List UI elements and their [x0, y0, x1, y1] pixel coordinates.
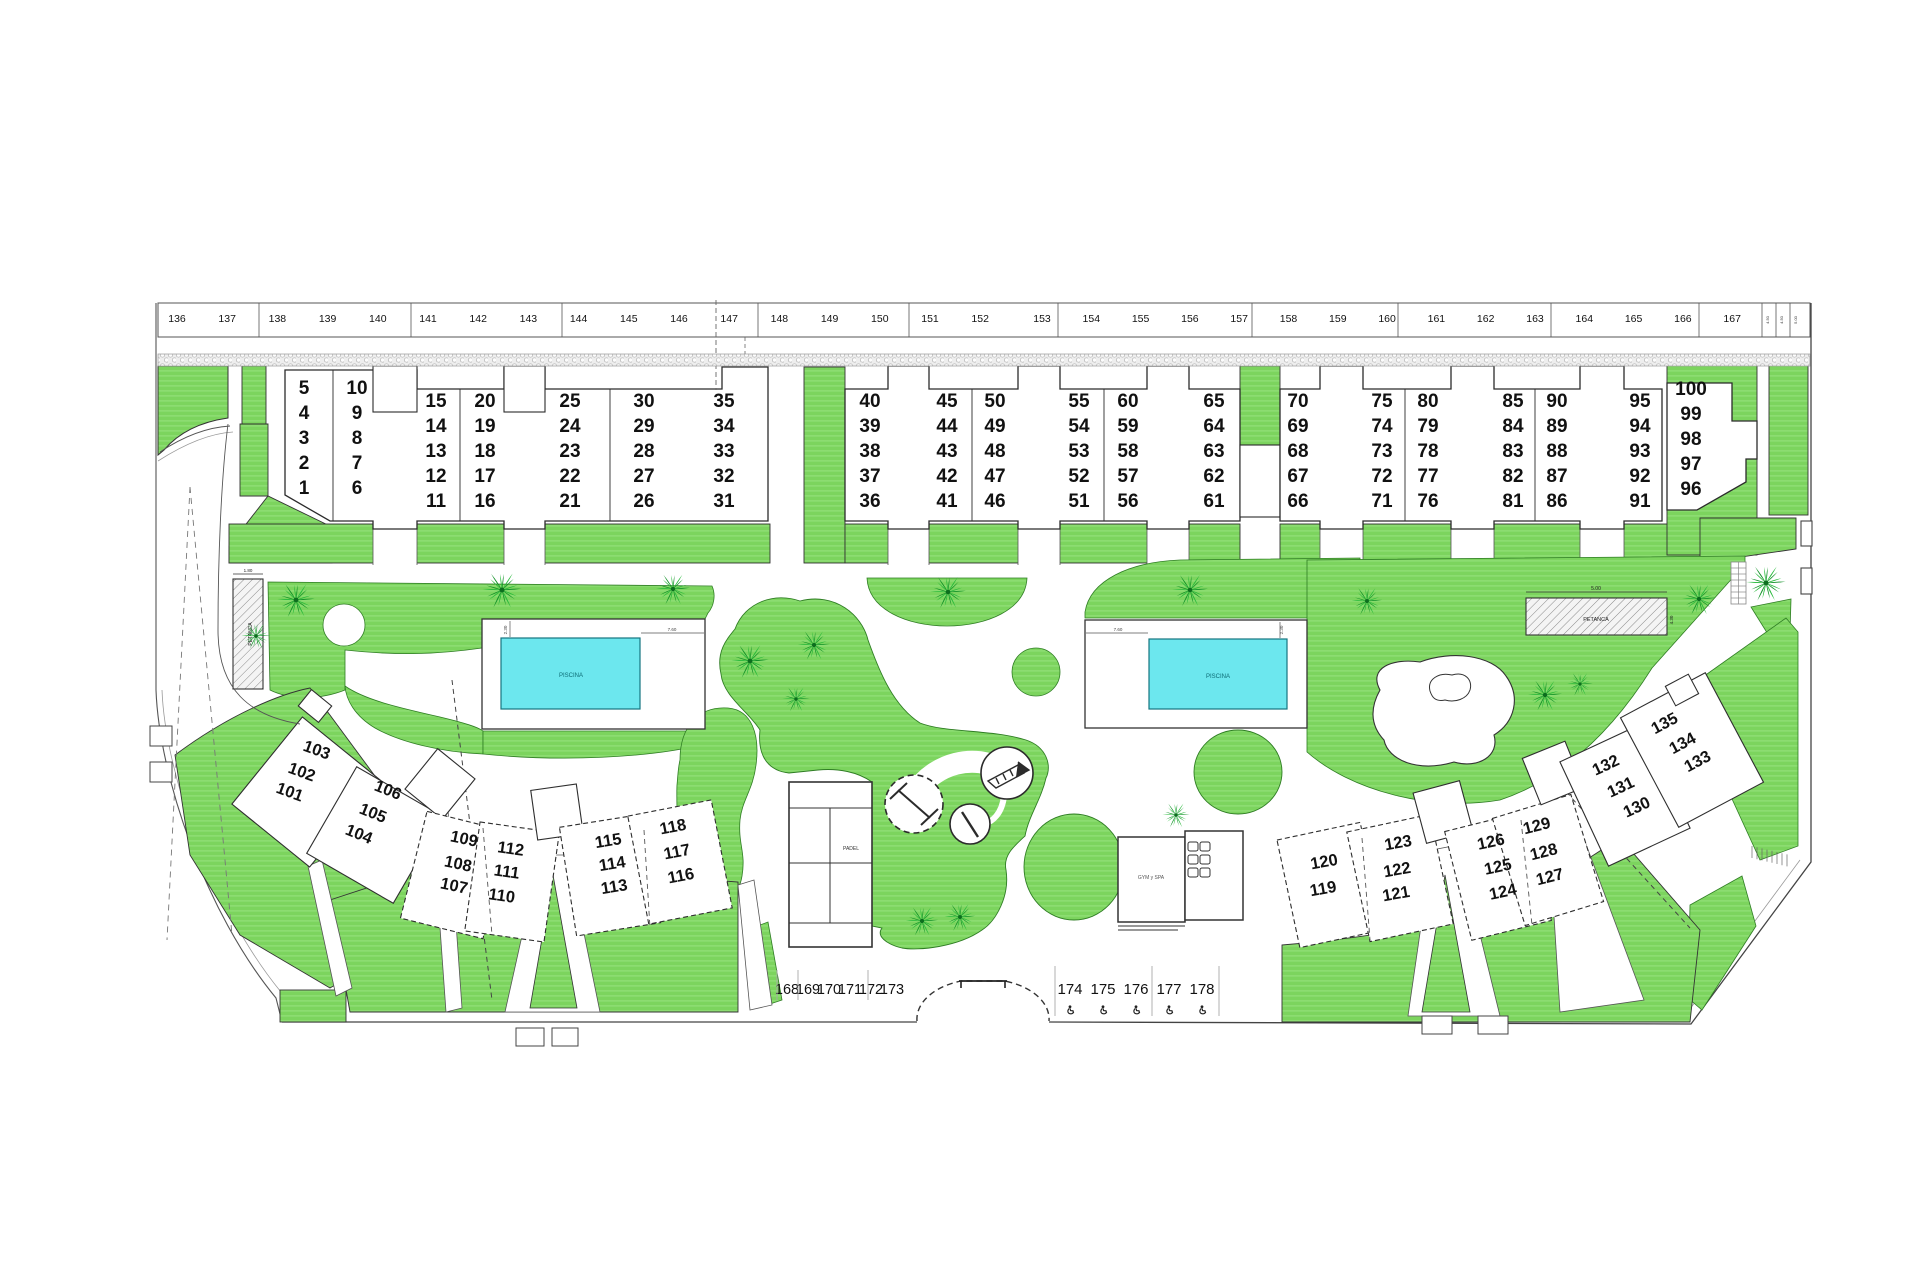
svg-text:65: 65: [1203, 391, 1225, 412]
svg-text:137: 137: [218, 313, 236, 325]
svg-text:166: 166: [1674, 313, 1692, 325]
svg-text:9: 9: [352, 403, 363, 424]
svg-text:PISCINA: PISCINA: [559, 673, 583, 679]
svg-text:51: 51: [1068, 491, 1090, 512]
svg-text:2.30: 2.30: [503, 625, 508, 634]
svg-text:55: 55: [1068, 391, 1090, 412]
svg-text:90: 90: [1546, 391, 1567, 412]
svg-text:93: 93: [1629, 441, 1650, 462]
svg-text:GYM y SPA: GYM y SPA: [1138, 875, 1165, 881]
svg-text:138: 138: [269, 313, 287, 325]
svg-text:152: 152: [971, 313, 989, 325]
svg-text:174: 174: [1057, 981, 1082, 998]
svg-text:43: 43: [936, 441, 957, 462]
svg-text:66: 66: [1287, 491, 1308, 512]
svg-text:57: 57: [1117, 466, 1138, 487]
svg-text:136: 136: [168, 313, 186, 325]
svg-text:PISCINA: PISCINA: [1206, 674, 1230, 680]
svg-text:25: 25: [559, 391, 581, 412]
svg-text:95: 95: [1629, 391, 1651, 412]
svg-text:157: 157: [1230, 313, 1248, 325]
svg-text:5: 5: [299, 378, 310, 399]
svg-text:77: 77: [1417, 466, 1438, 487]
svg-text:PADEL: PADEL: [843, 846, 859, 852]
svg-text:145: 145: [620, 313, 638, 325]
svg-text:23: 23: [559, 441, 580, 462]
svg-text:159: 159: [1329, 313, 1347, 325]
svg-text:18: 18: [474, 441, 495, 462]
svg-text:111: 111: [493, 861, 521, 882]
svg-text:39: 39: [859, 416, 880, 437]
svg-text:49: 49: [984, 416, 1005, 437]
svg-text:150: 150: [871, 313, 889, 325]
svg-text:163: 163: [1526, 313, 1544, 325]
svg-text:24: 24: [559, 416, 581, 437]
svg-text:52: 52: [1068, 466, 1089, 487]
svg-text:63: 63: [1203, 441, 1224, 462]
svg-text:2.30: 2.30: [1279, 625, 1284, 634]
svg-text:33: 33: [713, 441, 734, 462]
svg-text:40: 40: [859, 391, 880, 412]
svg-text:27: 27: [633, 466, 654, 487]
svg-text:142: 142: [469, 313, 487, 325]
svg-text:21: 21: [559, 491, 581, 512]
svg-text:151: 151: [921, 313, 939, 325]
svg-text:110: 110: [487, 885, 516, 907]
svg-text:155: 155: [1132, 313, 1150, 325]
svg-text:56: 56: [1117, 491, 1138, 512]
svg-text:12: 12: [425, 466, 446, 487]
svg-text:38: 38: [859, 441, 880, 462]
svg-text:32: 32: [713, 466, 734, 487]
svg-text:26: 26: [633, 491, 654, 512]
svg-text:160: 160: [1378, 313, 1396, 325]
svg-text:177: 177: [1156, 981, 1181, 998]
svg-text:143: 143: [520, 313, 538, 325]
svg-text:71: 71: [1371, 491, 1393, 512]
svg-text:35: 35: [713, 391, 735, 412]
svg-text:45: 45: [936, 391, 958, 412]
svg-text:1: 1: [299, 478, 310, 499]
svg-text:4.50: 4.50: [1765, 315, 1770, 324]
svg-text:62: 62: [1203, 466, 1224, 487]
svg-text:34: 34: [713, 416, 735, 437]
svg-text:83: 83: [1502, 441, 1523, 462]
svg-text:13: 13: [425, 441, 446, 462]
svg-text:112: 112: [496, 838, 525, 860]
svg-text:20: 20: [474, 391, 495, 412]
svg-text:16: 16: [474, 491, 495, 512]
svg-text:73: 73: [1371, 441, 1392, 462]
svg-text:76: 76: [1417, 491, 1438, 512]
svg-text:14: 14: [425, 416, 447, 437]
svg-text:30: 30: [633, 391, 654, 412]
svg-text:4.30: 4.30: [1669, 615, 1674, 624]
svg-text:5.00: 5.00: [1591, 586, 1601, 592]
svg-text:37: 37: [859, 466, 880, 487]
svg-text:60: 60: [1117, 391, 1138, 412]
svg-text:161: 161: [1428, 313, 1446, 325]
svg-text:100: 100: [1675, 379, 1707, 400]
svg-text:86: 86: [1546, 491, 1567, 512]
svg-text:50: 50: [984, 391, 1005, 412]
svg-text:141: 141: [419, 313, 437, 325]
svg-text:88: 88: [1546, 441, 1567, 462]
svg-text:29: 29: [633, 416, 654, 437]
svg-text:28: 28: [633, 441, 654, 462]
svg-text:8: 8: [352, 428, 363, 449]
svg-text:68: 68: [1287, 441, 1308, 462]
svg-text:3: 3: [299, 428, 310, 449]
svg-text:4: 4: [299, 403, 310, 424]
svg-text:67: 67: [1287, 466, 1308, 487]
svg-text:53: 53: [1068, 441, 1089, 462]
svg-text:6: 6: [352, 478, 363, 499]
svg-text:47: 47: [984, 466, 1005, 487]
svg-text:164: 164: [1576, 313, 1594, 325]
svg-text:165: 165: [1625, 313, 1643, 325]
svg-text:139: 139: [319, 313, 337, 325]
svg-text:89: 89: [1546, 416, 1567, 437]
svg-text:78: 78: [1417, 441, 1438, 462]
svg-text:97: 97: [1680, 454, 1701, 475]
svg-text:178: 178: [1189, 981, 1214, 998]
svg-text:59: 59: [1117, 416, 1138, 437]
svg-text:41: 41: [936, 491, 958, 512]
svg-text:10: 10: [346, 378, 367, 399]
svg-text:153: 153: [1033, 313, 1051, 325]
svg-text:7.60: 7.60: [668, 627, 677, 632]
svg-text:92: 92: [1629, 466, 1650, 487]
svg-text:42: 42: [936, 466, 957, 487]
svg-text:4.50: 4.50: [1779, 315, 1784, 324]
svg-text:149: 149: [821, 313, 839, 325]
svg-text:7.60: 7.60: [1114, 627, 1123, 632]
svg-text:99: 99: [1680, 404, 1701, 425]
svg-text:144: 144: [570, 313, 588, 325]
svg-text:98: 98: [1680, 429, 1701, 450]
svg-text:75: 75: [1371, 391, 1393, 412]
svg-text:146: 146: [670, 313, 688, 325]
svg-text:54: 54: [1068, 416, 1090, 437]
svg-text:72: 72: [1371, 466, 1392, 487]
svg-text:11: 11: [426, 491, 447, 512]
svg-text:5.00: 5.00: [1793, 315, 1798, 324]
svg-text:74: 74: [1371, 416, 1393, 437]
svg-text:154: 154: [1083, 313, 1101, 325]
svg-text:148: 148: [771, 313, 789, 325]
svg-text:82: 82: [1502, 466, 1523, 487]
svg-text:19: 19: [474, 416, 495, 437]
svg-text:140: 140: [369, 313, 387, 325]
svg-text:2: 2: [299, 453, 310, 474]
svg-text:31: 31: [713, 491, 735, 512]
svg-text:167: 167: [1723, 313, 1741, 325]
svg-text:1.80: 1.80: [244, 568, 253, 573]
svg-text:70: 70: [1287, 391, 1308, 412]
svg-text:48: 48: [984, 441, 1005, 462]
svg-text:173: 173: [880, 982, 904, 998]
svg-text:69: 69: [1287, 416, 1308, 437]
svg-text:87: 87: [1546, 466, 1567, 487]
svg-text:58: 58: [1117, 441, 1138, 462]
svg-text:81: 81: [1502, 491, 1524, 512]
svg-text:175: 175: [1090, 981, 1115, 998]
svg-text:61: 61: [1203, 491, 1225, 512]
svg-text:7: 7: [352, 453, 363, 474]
svg-text:158: 158: [1280, 313, 1298, 325]
svg-text:PETANCA: PETANCA: [1583, 617, 1609, 623]
svg-text:22: 22: [559, 466, 580, 487]
svg-text:64: 64: [1203, 416, 1225, 437]
svg-text:91: 91: [1629, 491, 1651, 512]
svg-text:176: 176: [1123, 981, 1148, 998]
svg-text:147: 147: [720, 313, 738, 325]
svg-text:79: 79: [1417, 416, 1438, 437]
svg-text:15: 15: [425, 391, 447, 412]
svg-text:17: 17: [474, 466, 495, 487]
svg-text:84: 84: [1502, 416, 1524, 437]
svg-text:36: 36: [859, 491, 880, 512]
svg-text:85: 85: [1502, 391, 1524, 412]
svg-text:46: 46: [984, 491, 1005, 512]
svg-text:162: 162: [1477, 313, 1495, 325]
svg-text:156: 156: [1181, 313, 1199, 325]
svg-text:96: 96: [1680, 479, 1701, 500]
svg-text:80: 80: [1417, 391, 1438, 412]
svg-text:94: 94: [1629, 416, 1651, 437]
svg-text:44: 44: [936, 416, 958, 437]
